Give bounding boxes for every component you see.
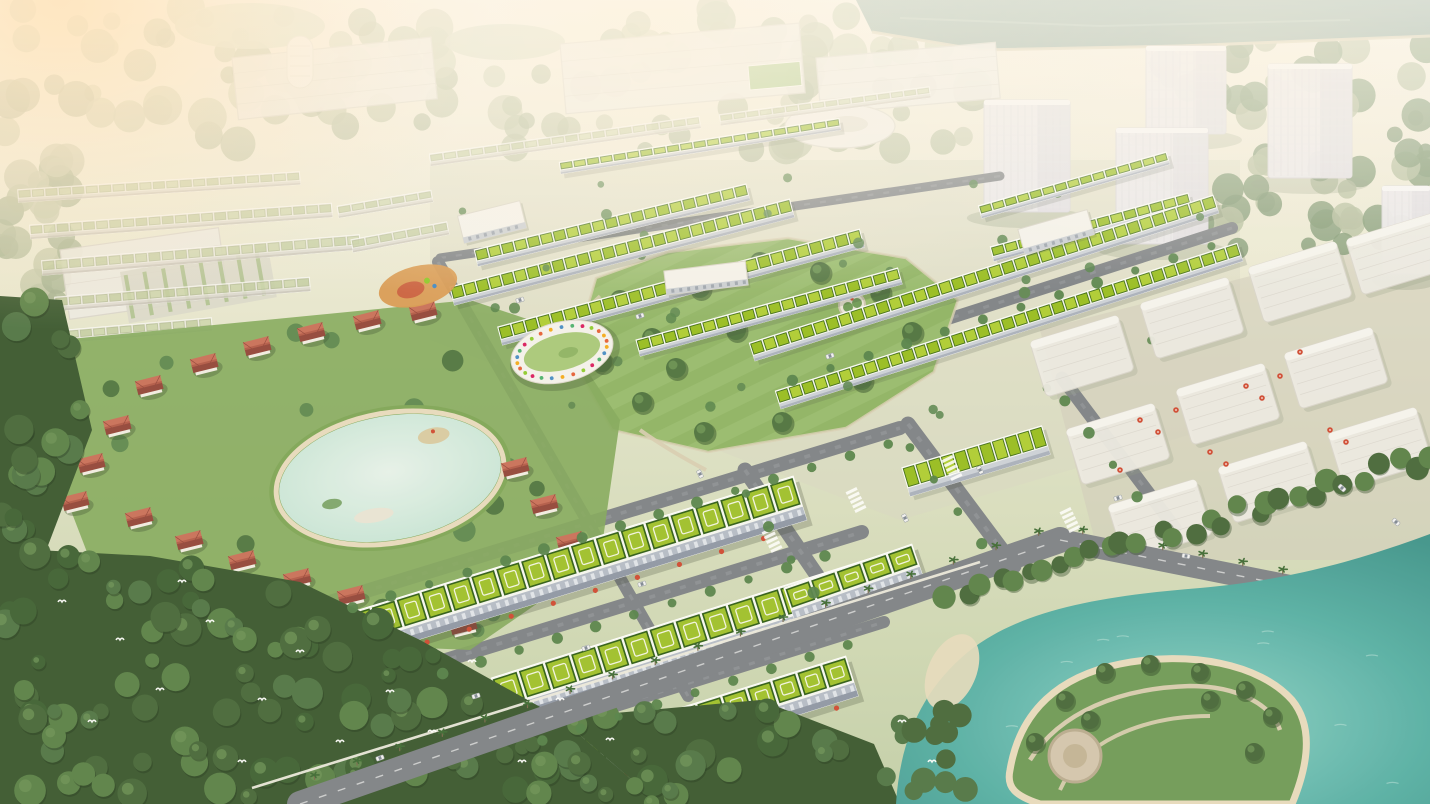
render-canvas (0, 0, 1430, 804)
sunlight-haze (0, 0, 1430, 804)
aerial-masterplan-render (0, 0, 1430, 804)
